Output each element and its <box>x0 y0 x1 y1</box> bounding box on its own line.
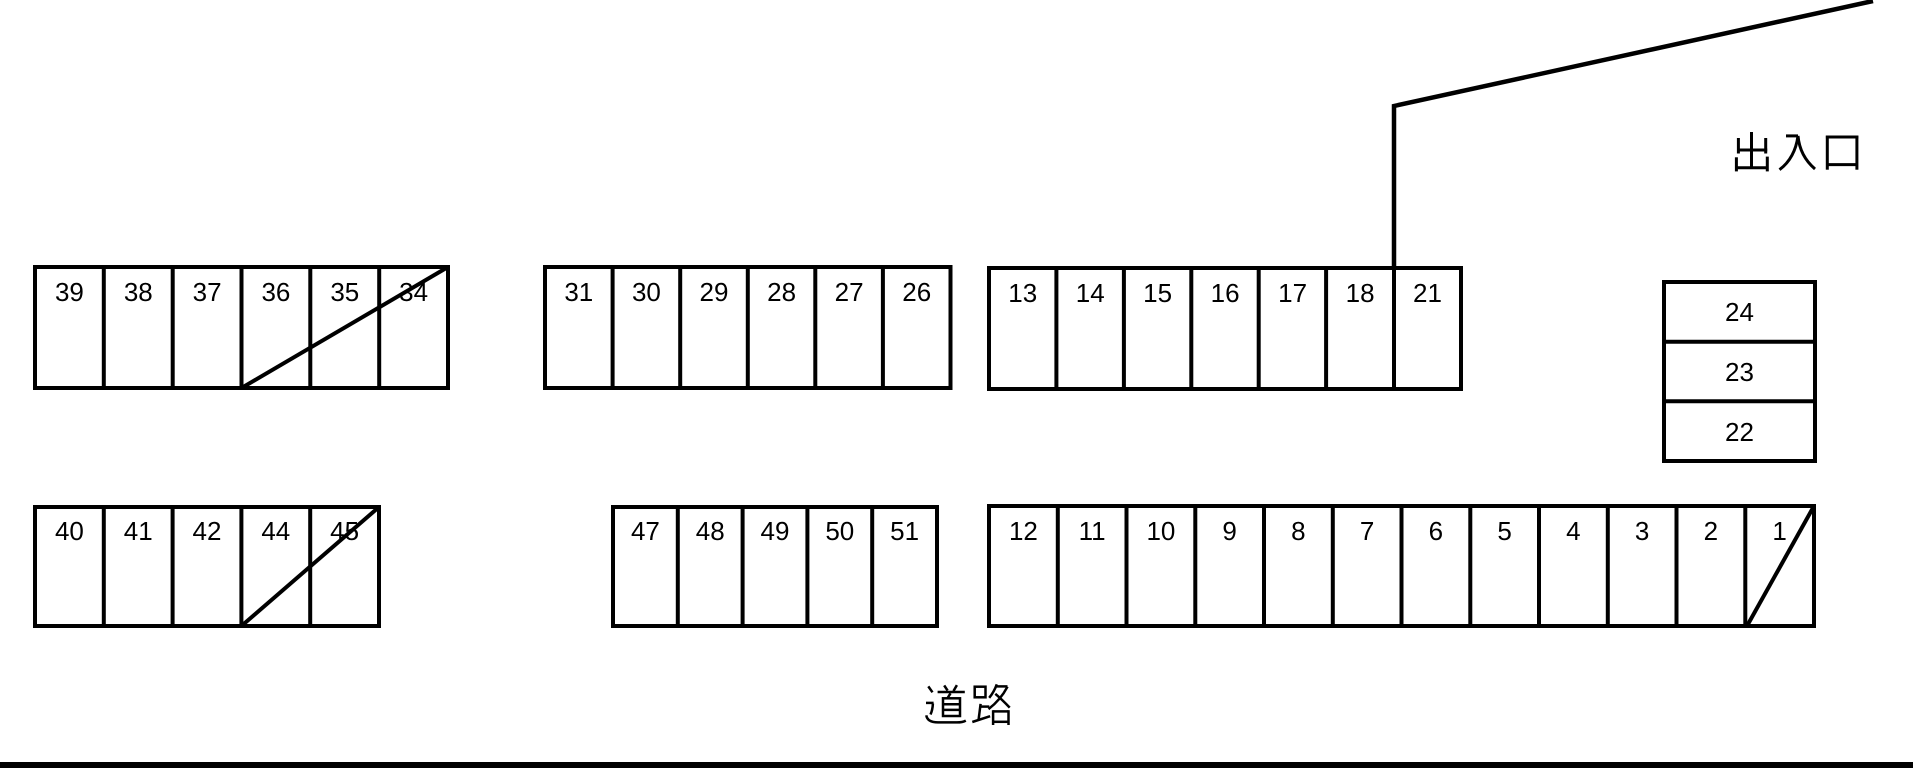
svg-text:28: 28 <box>767 277 796 307</box>
svg-text:10: 10 <box>1146 516 1175 546</box>
svg-text:41: 41 <box>124 516 153 546</box>
svg-text:13: 13 <box>1008 278 1037 308</box>
svg-text:21: 21 <box>1413 278 1442 308</box>
svg-text:8: 8 <box>1291 516 1305 546</box>
svg-text:11: 11 <box>1079 516 1106 546</box>
svg-text:27: 27 <box>835 277 864 307</box>
svg-text:39: 39 <box>55 277 84 307</box>
svg-text:5: 5 <box>1497 516 1511 546</box>
svg-text:35: 35 <box>330 277 359 307</box>
svg-text:9: 9 <box>1222 516 1236 546</box>
svg-text:12: 12 <box>1009 516 1038 546</box>
svg-text:42: 42 <box>193 516 222 546</box>
svg-text:48: 48 <box>696 516 725 546</box>
svg-text:31: 31 <box>564 277 593 307</box>
svg-text:36: 36 <box>261 277 290 307</box>
svg-text:1: 1 <box>1772 516 1786 546</box>
svg-text:29: 29 <box>700 277 729 307</box>
svg-text:4: 4 <box>1566 516 1580 546</box>
svg-text:15: 15 <box>1143 278 1172 308</box>
svg-text:49: 49 <box>761 516 790 546</box>
svg-text:45: 45 <box>330 516 359 546</box>
svg-text:22: 22 <box>1725 417 1754 447</box>
svg-text:23: 23 <box>1725 357 1754 387</box>
svg-text:50: 50 <box>825 516 854 546</box>
svg-text:38: 38 <box>124 277 153 307</box>
svg-text:14: 14 <box>1076 278 1105 308</box>
svg-text:2: 2 <box>1704 516 1718 546</box>
svg-text:24: 24 <box>1725 297 1754 327</box>
svg-text:16: 16 <box>1211 278 1240 308</box>
svg-text:18: 18 <box>1346 278 1375 308</box>
svg-text:6: 6 <box>1429 516 1443 546</box>
svg-text:7: 7 <box>1360 516 1374 546</box>
svg-text:37: 37 <box>193 277 222 307</box>
svg-text:44: 44 <box>261 516 290 546</box>
svg-text:26: 26 <box>902 277 931 307</box>
svg-text:51: 51 <box>890 516 919 546</box>
svg-text:3: 3 <box>1635 516 1649 546</box>
svg-text:40: 40 <box>55 516 84 546</box>
svg-text:34: 34 <box>399 277 428 307</box>
svg-text:17: 17 <box>1278 278 1307 308</box>
svg-text:47: 47 <box>631 516 660 546</box>
svg-text:30: 30 <box>632 277 661 307</box>
